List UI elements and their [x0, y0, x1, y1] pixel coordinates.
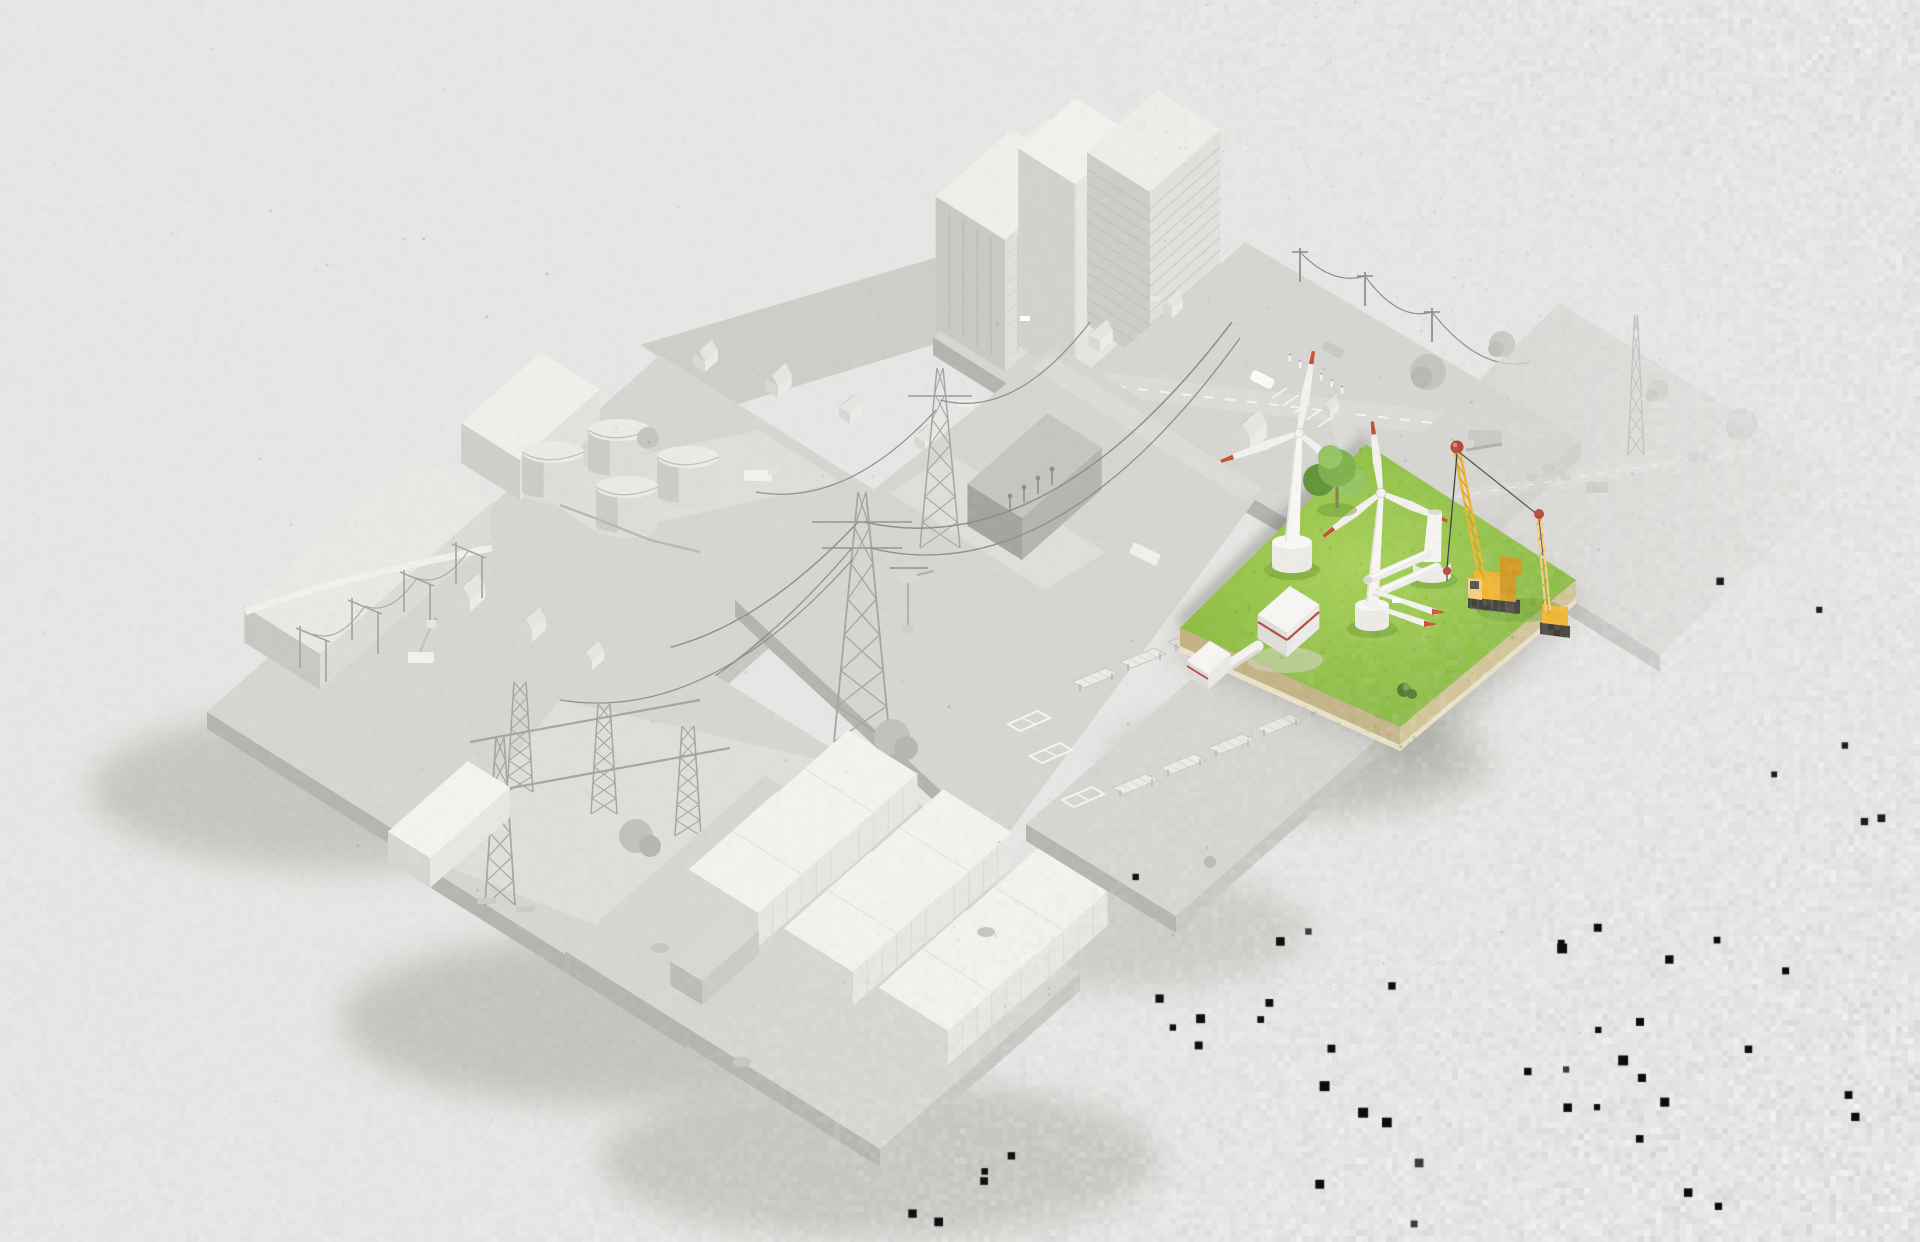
grass-speck [1355, 571, 1359, 575]
grass-speck [1329, 569, 1331, 571]
grass-speck [1415, 706, 1418, 709]
suburb-wire [1365, 276, 1432, 314]
grass-speck [1259, 576, 1262, 579]
grass-speck [1387, 680, 1391, 684]
grey-tree [1726, 419, 1745, 438]
bushing-cap [1008, 494, 1013, 499]
tanker-truck [744, 470, 772, 481]
bushing-cap [1022, 485, 1027, 490]
grass-speck [1430, 590, 1434, 594]
grass-speck [1425, 597, 1428, 600]
hub [1294, 428, 1303, 437]
grass-speck [1359, 714, 1363, 718]
grass-speck [1559, 586, 1561, 588]
grass-speck [1361, 535, 1364, 538]
grass-speck [1402, 471, 1405, 474]
grass-speck [1400, 706, 1404, 710]
grass-speck [1399, 480, 1402, 483]
grass-speck [1381, 697, 1384, 700]
grass-speck [1437, 670, 1440, 673]
grass-speck [1527, 578, 1529, 580]
back-house [839, 393, 862, 424]
crane-body-shade [1500, 572, 1516, 602]
ev-charger-screen [1341, 385, 1343, 388]
grass-speck [1235, 610, 1239, 614]
bucket-truck [408, 652, 434, 663]
footing-pad [478, 898, 496, 904]
isometric-energy-scene [0, 0, 1920, 1242]
shrub [1204, 856, 1216, 868]
grass-speck [1367, 729, 1371, 733]
grass-speck [1382, 481, 1386, 485]
grass-speck [1220, 624, 1223, 627]
grass-speck [1423, 717, 1426, 720]
ev-charger-screen [1289, 353, 1291, 356]
grass-speck [1349, 565, 1351, 567]
grass-speck [1368, 493, 1372, 497]
grass-speck [1422, 699, 1424, 701]
grass-speck [1533, 596, 1535, 598]
grass-speck [1519, 593, 1523, 597]
grass-speck [1434, 696, 1437, 699]
grass-speck [1373, 724, 1377, 728]
grass-speck [1477, 633, 1480, 636]
segment-end [1363, 576, 1372, 583]
grass-speck [1421, 636, 1425, 640]
grass-speck [1341, 621, 1345, 625]
grass-speck [1385, 718, 1388, 721]
bushing-cap [1050, 467, 1055, 472]
grass-speck [1216, 605, 1219, 608]
grass-speck [1377, 715, 1380, 718]
grass-speck [1372, 642, 1375, 645]
tractor [1586, 482, 1608, 493]
grass-speck [1412, 476, 1414, 478]
grass-speck [1407, 622, 1409, 624]
grass-speck [1470, 660, 1473, 663]
grass-speck [1252, 570, 1255, 573]
illustration-stage [0, 0, 1920, 1242]
blade-support-block [1392, 598, 1401, 603]
grass-speck [1446, 525, 1448, 527]
helicopter-body [897, 572, 919, 583]
grass-speck [1351, 719, 1355, 723]
cab-window [1470, 581, 1479, 589]
grass-speck [1472, 644, 1476, 648]
grass-speck [1220, 590, 1222, 592]
hay-bale [1560, 473, 1572, 481]
grass-speck [1265, 673, 1269, 677]
grass-speck [1260, 553, 1262, 555]
grass-speck [1503, 621, 1506, 624]
grass-speck [1435, 694, 1438, 697]
grass-speck [1341, 600, 1344, 603]
grass-speck [1326, 645, 1328, 647]
grass-speck [1480, 624, 1483, 627]
grass-speck [1371, 748, 1373, 750]
grass-speck [1402, 551, 1405, 554]
grass-speck [1442, 620, 1446, 624]
stub-flange [1428, 509, 1442, 515]
grass-speck [1193, 615, 1195, 617]
storage-tank [596, 476, 658, 538]
grass-speck [1262, 550, 1264, 552]
grass-speck [1467, 679, 1471, 683]
storage-tank [588, 419, 650, 481]
grass-speck [1446, 508, 1449, 511]
grass-speck [1483, 545, 1487, 549]
ev-charger-screen [1320, 372, 1322, 375]
grey-tree [1411, 366, 1433, 388]
grass-speck [1445, 670, 1449, 674]
grass-speck [1359, 448, 1363, 452]
storage-tank [657, 446, 719, 508]
grass-speck [1428, 629, 1432, 633]
grass-speck [1511, 547, 1515, 551]
bushing-cap [1036, 476, 1041, 481]
grass-speck [1331, 571, 1334, 574]
grey-tree [894, 736, 918, 760]
grass-speck [1557, 590, 1559, 592]
grass-speck [1225, 597, 1227, 599]
grass-speck [1414, 649, 1416, 651]
grass-speck [1249, 632, 1253, 636]
grass-speck [1218, 643, 1220, 645]
grass-speck [1340, 626, 1342, 628]
grass-speck [1374, 655, 1377, 658]
grass-speck [1392, 559, 1394, 561]
grass-speck [1372, 745, 1375, 748]
grass-speck [1314, 711, 1317, 714]
grass-speck [1455, 648, 1458, 651]
hay-bale [1542, 464, 1554, 472]
grass-speck [1263, 597, 1266, 600]
bucket [427, 620, 436, 628]
grass-speck [1359, 690, 1362, 693]
grass-speck [1436, 649, 1440, 653]
grass-speck [1440, 680, 1443, 683]
grass-speck [1319, 527, 1322, 530]
street-car [1020, 316, 1030, 321]
ev-charger-screen [1331, 379, 1333, 382]
grass-speck [1434, 682, 1438, 686]
boom-tip-sheave [1451, 441, 1464, 454]
grass-speck [1359, 563, 1363, 567]
grass-speck [1303, 706, 1305, 708]
grass-speck [1360, 674, 1364, 678]
grass-speck [1461, 569, 1465, 573]
grass-speck [1219, 633, 1222, 636]
grass-speck [1494, 649, 1498, 653]
grass-speck [1452, 670, 1456, 674]
grey-tree [1645, 388, 1658, 401]
grass-speck [1247, 605, 1250, 608]
grass-speck [1412, 680, 1414, 682]
bush-blob [1407, 689, 1417, 699]
grass-speck [1360, 685, 1363, 688]
grass-speck [1328, 639, 1332, 643]
grass-speck [1291, 691, 1295, 695]
gravel-pile [977, 927, 995, 937]
ev-charger-screen [1299, 359, 1301, 362]
grey-tree [639, 835, 661, 857]
grass-speck [1410, 568, 1414, 572]
grass-speck [1504, 545, 1507, 548]
grass-speck [1393, 618, 1396, 621]
grass-speck [1315, 546, 1319, 550]
grass-speck [1407, 742, 1410, 745]
grass-speck [1403, 638, 1406, 641]
tower-tall-left [1018, 148, 1075, 382]
grass-speck [1343, 570, 1345, 572]
hay-bale [1526, 473, 1538, 481]
footing-pad [516, 906, 534, 912]
grey-tree [637, 427, 659, 449]
grass-speck [1425, 635, 1429, 639]
grass-speck [1484, 537, 1487, 540]
grass-speck [1355, 536, 1358, 539]
grass-speck [1442, 646, 1445, 649]
grass-speck [1305, 695, 1308, 698]
grass-speck [1323, 659, 1326, 662]
grass-speck [1391, 605, 1393, 607]
grass-speck [1338, 722, 1341, 725]
street-car [1150, 296, 1160, 301]
grass-speck [1479, 631, 1481, 633]
grey-tree [1488, 341, 1504, 357]
grass-speck [1401, 525, 1404, 528]
grass-speck [1387, 481, 1389, 483]
grass-speck [1412, 735, 1416, 739]
grass-speck [1393, 507, 1395, 509]
grass-speck [1428, 648, 1430, 650]
assist-tip-ball [1534, 509, 1544, 519]
grass-speck [1362, 688, 1364, 690]
grass-speck [1367, 569, 1370, 572]
grass-speck [1311, 701, 1313, 703]
grass-speck [1458, 533, 1461, 536]
grass-speck [1510, 635, 1514, 639]
grass-speck [1489, 622, 1492, 625]
grass-speck [1198, 622, 1200, 624]
grass-speck [1417, 498, 1419, 500]
grass-speck [1321, 651, 1325, 655]
grass-speck [1186, 623, 1189, 626]
grass-speck [1387, 542, 1390, 545]
grass-speck [1458, 641, 1460, 643]
grass-speck [1392, 490, 1394, 492]
hook-ball [1443, 567, 1451, 575]
grass-speck [1397, 573, 1400, 576]
maintenance-basket [902, 625, 914, 633]
forklift [1088, 768, 1102, 777]
grass-speck [1249, 667, 1251, 669]
bush-highlight [1402, 683, 1409, 690]
grass-speck [1405, 635, 1408, 638]
grass-speck [1386, 694, 1390, 698]
grass-speck [1335, 681, 1337, 683]
gravel-pile [651, 943, 669, 953]
tree-foliage [1318, 445, 1342, 469]
gravel-pile [733, 1057, 751, 1067]
counterweight [1500, 556, 1522, 576]
grass-speck [1329, 546, 1332, 549]
grass-speck [1424, 687, 1427, 690]
sheave-highlight [1453, 443, 1457, 447]
grass-speck [1325, 664, 1328, 667]
grass-speck [1308, 524, 1312, 528]
grass-speck [1384, 669, 1387, 672]
grass-speck [1506, 539, 1510, 543]
hub [1376, 488, 1385, 497]
farm-truck [1688, 452, 1708, 462]
grass-speck [1349, 590, 1352, 593]
grass-speck [1553, 570, 1556, 573]
grass-speck [1237, 573, 1240, 576]
truck-cab [768, 466, 777, 475]
grass-speck [1341, 543, 1345, 547]
suburb-wire [1300, 252, 1365, 278]
grass-speck [1414, 494, 1417, 497]
grass-speck [1355, 500, 1357, 502]
grass-speck [1400, 746, 1402, 748]
grass-speck [1447, 500, 1451, 504]
storage-tank [522, 441, 584, 503]
grass-speck [1454, 531, 1457, 534]
grass-speck [1341, 637, 1344, 640]
grass-speck [1411, 549, 1414, 552]
